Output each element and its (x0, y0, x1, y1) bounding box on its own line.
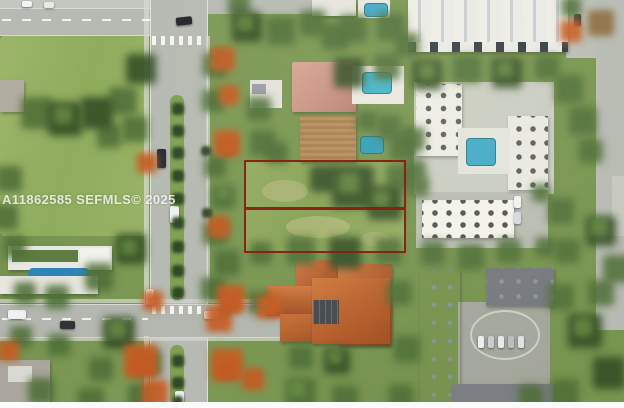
parked-car (44, 2, 54, 8)
car (204, 311, 219, 319)
apartment-pool (466, 138, 496, 166)
pool-mid (362, 72, 392, 94)
crosswalk-top (152, 36, 204, 45)
wood-deck (300, 116, 356, 162)
townhouse-row (408, 0, 568, 52)
pool-top-right (364, 3, 388, 17)
parked-car (518, 336, 524, 348)
modern-house-lower-wing (0, 276, 98, 294)
sidewalk-left-lower (144, 336, 149, 408)
parked-car (498, 336, 504, 348)
gray-house-left-edge (0, 80, 24, 112)
road-vertical-right (596, 0, 624, 330)
sidewalk-right (206, 36, 210, 300)
modern-house-green-roof (12, 250, 78, 262)
median-palm-trees (0, 0, 2, 2)
parked-car (514, 212, 521, 224)
townhouse-balconies (408, 42, 568, 52)
parcel-divider-line (246, 207, 404, 210)
subject-lot-outline (244, 160, 406, 253)
solar-panels (313, 300, 339, 324)
lane-dashes-top-road (2, 19, 150, 21)
parking-curve-marking (470, 310, 540, 360)
small-pool-mid (360, 136, 384, 154)
parked-car (22, 1, 32, 7)
salmon-roof-house (292, 62, 356, 112)
road-horizontal-top (0, 8, 160, 36)
car (157, 149, 166, 168)
apartment-long (422, 200, 514, 238)
parked-car (574, 14, 581, 26)
crosswalk-bottom (152, 306, 204, 314)
car (146, 289, 154, 305)
right-edge-pavement (612, 176, 624, 236)
photo-bottom-margin (0, 402, 624, 408)
car (170, 206, 179, 223)
parked-car (488, 336, 494, 348)
lot-house-south-gable (280, 314, 316, 342)
car (176, 16, 193, 26)
small-white-building-top (312, 0, 356, 16)
car (8, 310, 26, 319)
parked-car (508, 336, 514, 348)
apartment-northeast (508, 116, 548, 190)
driveway-top-right (566, 0, 596, 58)
parked-car (514, 196, 521, 208)
patio-roof (252, 84, 266, 94)
sidewalk-left (144, 0, 149, 304)
aerial-photo: A11862585 SEFMLS© 2025 (0, 0, 624, 408)
apartment-northwest (416, 84, 462, 156)
mls-watermark: A11862585 SEFMLS© 2025 (2, 192, 176, 207)
modern-house-white-box (80, 248, 110, 270)
parked-car (478, 336, 484, 348)
corner-house-roof-patch (8, 366, 32, 382)
sidewalk-bottom-south (0, 337, 300, 341)
gray-apartment-north (486, 268, 554, 306)
car (60, 321, 75, 329)
